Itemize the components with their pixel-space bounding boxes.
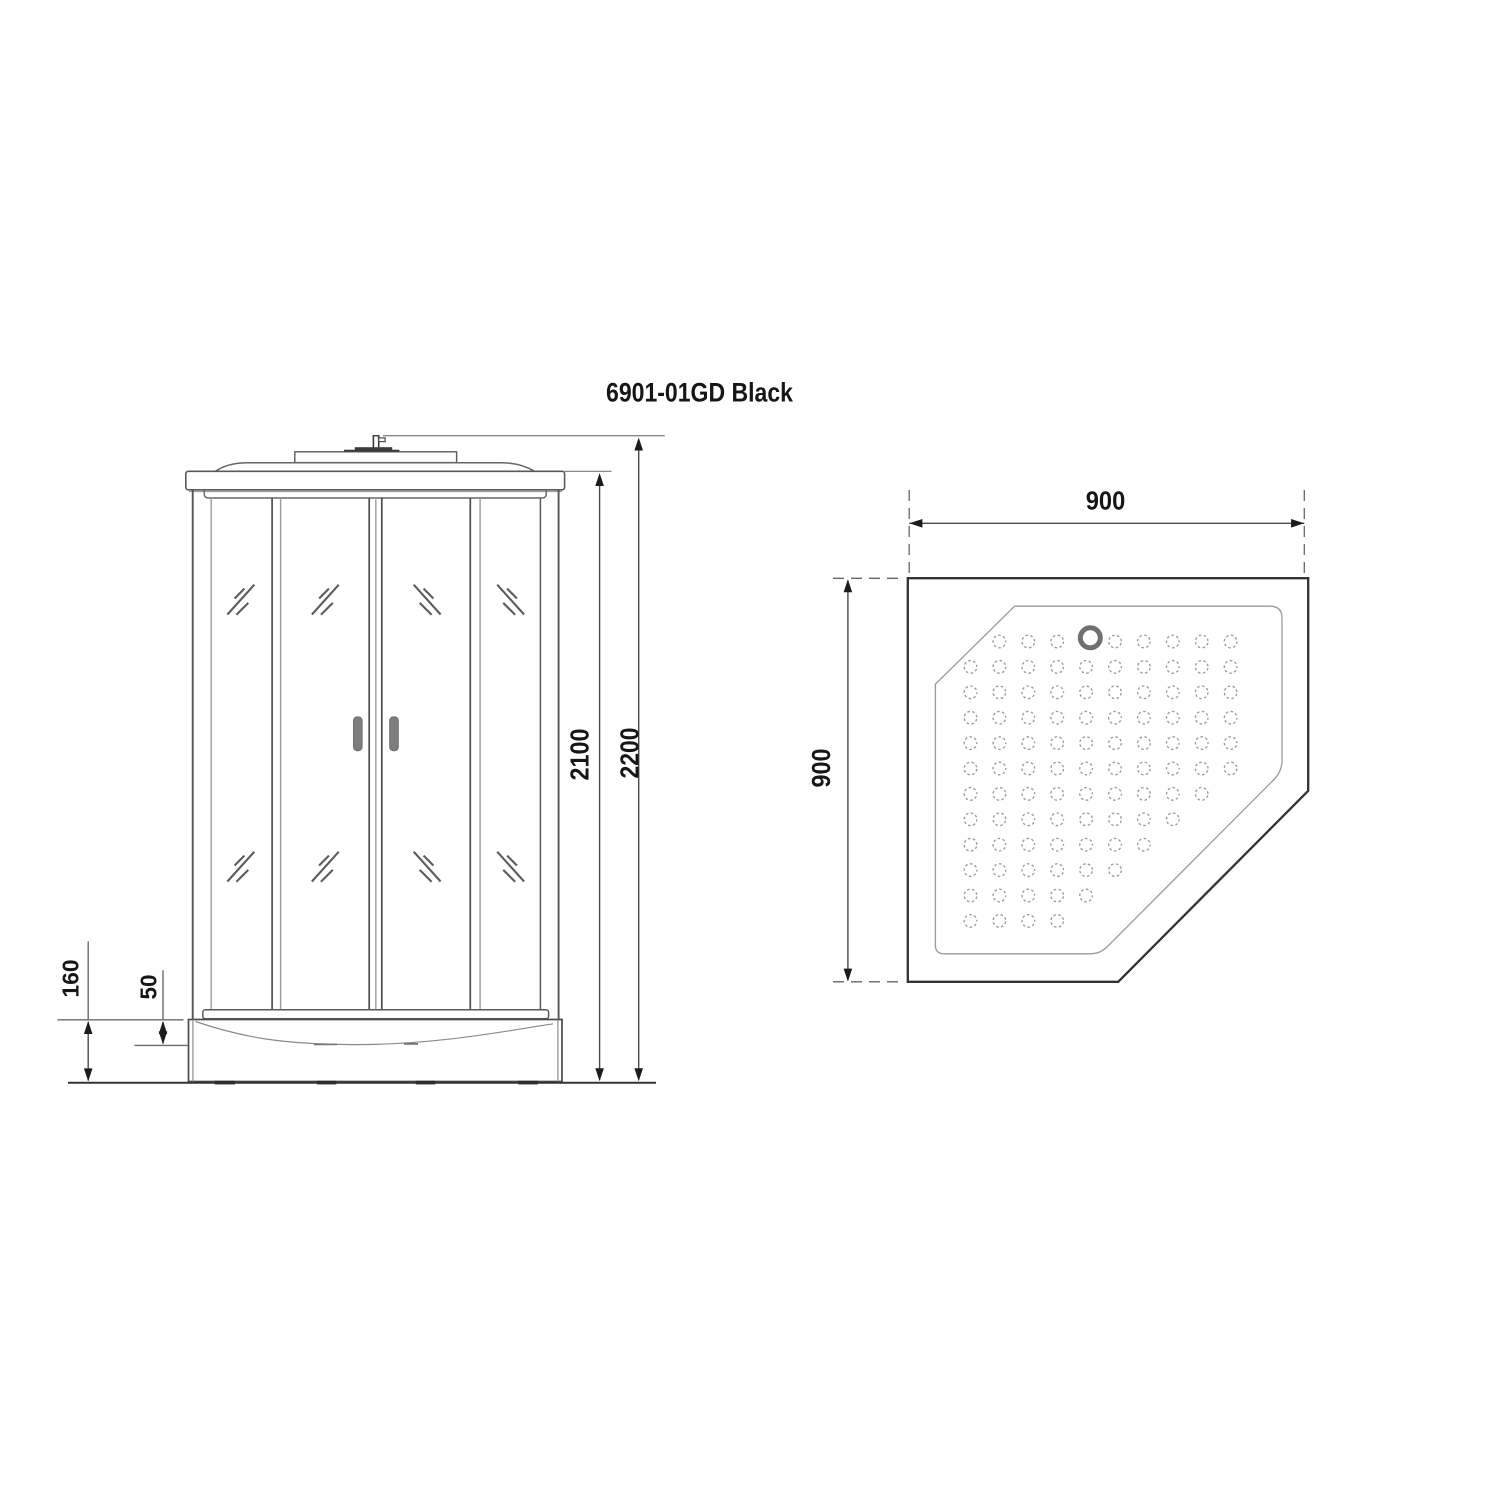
svg-text:2200: 2200 bbox=[615, 728, 645, 779]
svg-text:900: 900 bbox=[1086, 487, 1126, 515]
svg-text:2100: 2100 bbox=[565, 729, 595, 781]
svg-text:160: 160 bbox=[58, 960, 84, 998]
svg-text:900: 900 bbox=[808, 749, 836, 788]
svg-text:50: 50 bbox=[136, 975, 162, 1000]
svg-text:6901-01GD Black: 6901-01GD Black bbox=[606, 378, 793, 408]
